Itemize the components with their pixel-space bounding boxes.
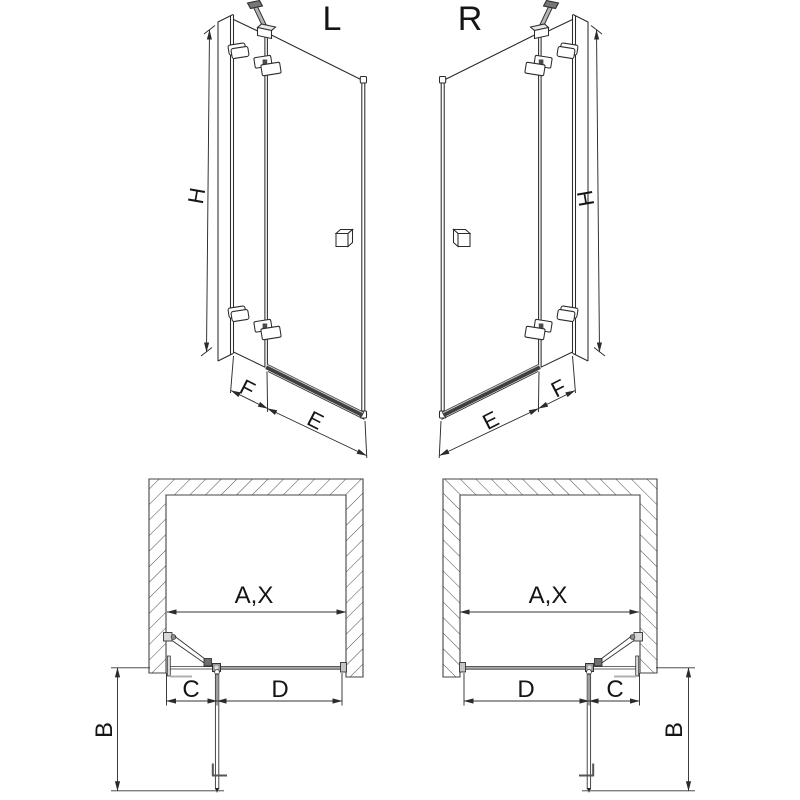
dim-label-c-left: C [182, 676, 199, 703]
dim-label-opening-right: A,X [529, 582, 568, 609]
dim-label-opening-left: A,X [235, 582, 274, 609]
perspective-view-left [201, 1, 367, 459]
dim-label-c-right: C [606, 676, 623, 703]
variant-label-right: R [458, 0, 483, 38]
shower-door-technical-diagram: L R H H F E E F A,X A,X C D D C B B [0, 0, 800, 800]
dim-label-f-left: F [236, 374, 259, 402]
variant-label-left: L [323, 0, 342, 38]
dim-label-height-right: H [572, 188, 599, 208]
dim-label-b-left: B [91, 722, 118, 738]
dim-label-e-left: E [303, 406, 327, 435]
perspective-view-right [439, 1, 605, 459]
dim-label-height-left: H [183, 186, 210, 206]
plan-view-right [443, 479, 695, 793]
dim-label-b-right: B [661, 722, 688, 738]
dim-label-d-right: D [517, 676, 534, 703]
dim-label-f-right: F [547, 374, 570, 402]
dim-label-e-right: E [478, 406, 502, 435]
plan-view-left [111, 479, 363, 793]
dim-label-d-left: D [271, 676, 288, 703]
diagram-canvas: L R H H F E E F A,X A,X C D D C B B [0, 0, 800, 800]
